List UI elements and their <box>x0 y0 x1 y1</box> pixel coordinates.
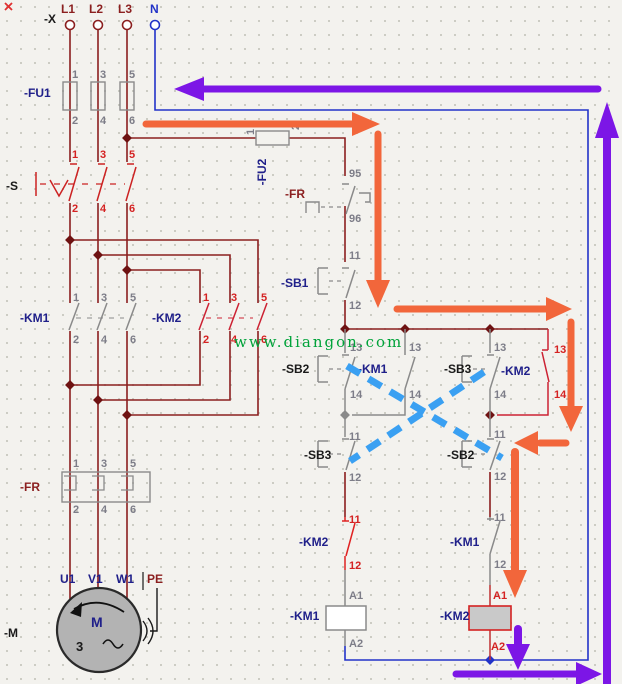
pin: 5 <box>129 69 135 81</box>
junction <box>65 380 75 390</box>
pin: 3 <box>100 149 106 161</box>
sb3-nc-symbol <box>342 439 355 470</box>
fu2-body <box>256 131 289 145</box>
km1-coil-body <box>326 606 366 630</box>
terminal-l2 <box>94 21 103 30</box>
terminal-l1 <box>66 21 75 30</box>
sb2-plunger-icon <box>318 356 328 382</box>
schematic-canvas: -X L1 L2 L3 N -FU1 1 3 5 2 4 6 -S 1 3 5 … <box>0 0 622 684</box>
motor-reversing-circuit-diagram: -X L1 L2 L3 N -FU1 1 3 5 2 4 6 -S 1 3 5 … <box>0 0 622 684</box>
pin: A2 <box>349 638 363 650</box>
pin: 2 <box>72 203 78 215</box>
corner-x-mark-icon <box>5 3 12 10</box>
phase-l2-label: L2 <box>89 2 103 16</box>
arrowhead-down <box>366 280 390 308</box>
pin: 2 <box>73 334 79 346</box>
phase-l3-label: L3 <box>118 2 132 16</box>
km2-aux-label: -KM2 <box>501 364 531 378</box>
power-wires <box>70 30 548 600</box>
junction <box>122 265 132 275</box>
fu1-label: -FU1 <box>24 86 51 100</box>
pin: 3 <box>100 69 106 81</box>
pin: 1 <box>73 458 79 470</box>
pin: 1 <box>73 292 79 304</box>
motor-phase-count: 3 <box>76 639 83 654</box>
motor-pe-label: PE <box>147 572 163 586</box>
pin: 12 <box>349 472 361 484</box>
pin: A2 <box>491 641 505 653</box>
fr-nc-contact: -FR 95 96 <box>285 168 370 225</box>
sb2-nc-contact: -SB2 11 12 <box>447 415 506 483</box>
pin: 12 <box>349 560 361 572</box>
flow-arrows-purple <box>174 77 619 684</box>
pin: 11 <box>349 250 361 262</box>
pin: 2 <box>73 504 79 516</box>
supply-terminals: -X L1 L2 L3 N <box>5 2 160 30</box>
sb2-nc-label: -SB2 <box>447 448 475 462</box>
km2-main-label: -KM2 <box>152 311 182 325</box>
pin: 3 <box>101 292 107 304</box>
contactor-km1-main: -KM1 1 3 5 2 4 6 <box>20 292 136 346</box>
pin: 1 <box>72 69 78 81</box>
km1-nc-symbol <box>487 517 500 585</box>
pin: 14 <box>409 389 422 401</box>
pin: 2 <box>72 115 78 127</box>
pin: 14 <box>554 389 567 401</box>
switch-contacts <box>69 164 136 201</box>
pin: 4 <box>100 115 107 127</box>
pin: 14 <box>350 389 363 401</box>
power-wire-path <box>70 30 548 600</box>
neutral-label: N <box>150 2 159 16</box>
motor-w1-label: W1 <box>116 572 134 586</box>
sb2-no-label: -SB2 <box>282 362 310 376</box>
km1-aux-label: -KM1 <box>358 362 388 376</box>
pin: 1 <box>72 149 78 161</box>
pin: 1 <box>203 292 209 304</box>
s-label: -S <box>6 179 18 193</box>
arrowhead-up <box>595 102 619 138</box>
arrowhead-left <box>174 77 204 101</box>
pin: 6 <box>129 115 135 127</box>
pin: 4 <box>101 504 108 516</box>
motor-u1-label: U1 <box>60 572 76 586</box>
fu2-label: -FU2 <box>255 158 269 185</box>
pin: 11 <box>349 431 361 443</box>
km1-coil-label: -KM1 <box>290 609 320 623</box>
km2-coil: -KM2 A1 A2 <box>440 590 511 653</box>
pin: 3 <box>101 458 107 470</box>
fuse-fu1: -FU1 1 3 5 2 4 6 <box>24 69 135 127</box>
pin: 5 <box>130 292 136 304</box>
junction <box>93 250 103 260</box>
km2-nc-label: -KM2 <box>299 535 329 549</box>
pin: 4 <box>101 334 108 346</box>
terminal-l3 <box>123 21 132 30</box>
pin: 1 <box>245 129 257 135</box>
phase-l1-label: L1 <box>61 2 75 16</box>
fr-nc-label: -FR <box>285 187 305 201</box>
junction <box>122 133 132 143</box>
pin: 5 <box>129 149 135 161</box>
pin: 13 <box>494 342 506 354</box>
interlock-dashed-lines <box>347 366 502 461</box>
km2-aux-contact: -KM2 13 14 <box>497 329 567 415</box>
pin: 12 <box>494 559 506 571</box>
pin: 6 <box>130 504 136 516</box>
motor-m: U1 V1 W1 PE M 3 -M <box>4 572 163 672</box>
sb1-nc-symbol <box>342 268 355 298</box>
pin: 95 <box>349 168 361 180</box>
fuse-fu2: 1 2 -FU2 <box>245 124 302 185</box>
pin: A1 <box>349 590 363 602</box>
km2-coil-label: -KM2 <box>440 609 470 623</box>
pin: 12 <box>494 471 506 483</box>
terminal-block-label: -X <box>44 12 56 26</box>
pin: 5 <box>130 458 136 470</box>
sb3-nc-label: -SB3 <box>304 448 332 462</box>
km1-main-label: -KM1 <box>20 311 50 325</box>
sb1-label: -SB1 <box>281 276 309 290</box>
junction <box>65 235 75 245</box>
pin: 6 <box>129 203 135 215</box>
pin: 6 <box>130 334 136 346</box>
km2-contacts <box>199 303 267 330</box>
motor-letter: M <box>91 614 103 630</box>
motor-v1-label: V1 <box>88 572 103 586</box>
arrowhead-right <box>546 297 572 321</box>
junction <box>93 395 103 405</box>
pin: 13 <box>554 344 566 356</box>
sb3-nc-contact: -SB3 11 12 <box>304 415 361 484</box>
terminal-n <box>151 21 160 30</box>
fr-trip-icon <box>306 202 319 213</box>
sb3-no-symbol <box>487 355 500 389</box>
km1-contacts <box>69 303 136 330</box>
pin: A1 <box>493 590 507 602</box>
pin: 13 <box>409 342 421 354</box>
km1-nc-label: -KM1 <box>450 535 480 549</box>
sb1-plunger-icon <box>318 268 328 294</box>
km1-aux-symbol <box>405 357 415 389</box>
sb1-stop-button: -SB1 11 12 <box>281 250 361 312</box>
km2-coil-body <box>469 606 511 630</box>
sb3-start-contact: -SB3 13 14 <box>444 329 507 415</box>
disconnect-switch-s: -S 1 3 5 2 4 6 <box>6 149 136 215</box>
pin: 14 <box>494 389 507 401</box>
pin: 11 <box>494 512 506 524</box>
pin: 5 <box>261 292 267 304</box>
pin: 12 <box>349 300 361 312</box>
junction <box>122 410 132 420</box>
pin: 2 <box>203 334 209 346</box>
pin: 11 <box>494 429 506 441</box>
pin: 4 <box>100 203 107 215</box>
km1-coil: -KM1 A1 A2 <box>290 590 366 650</box>
arrowhead-down <box>559 406 583 432</box>
fr-nc-symbol <box>342 184 370 214</box>
fr-power-label: -FR <box>20 480 40 494</box>
pin: 3 <box>231 292 237 304</box>
thermal-relay-fr-power: -FR 1 3 5 2 4 6 <box>20 458 150 516</box>
km1-nc-interlock: -KM1 11 12 <box>450 512 506 660</box>
watermark: www.diangon.com <box>234 333 403 351</box>
flow-arrows-orange <box>146 112 583 598</box>
motor-body <box>57 588 141 672</box>
arrowhead-down <box>506 644 530 670</box>
arrowhead-right <box>576 662 602 684</box>
motor-label: -M <box>4 626 18 640</box>
pin: 96 <box>349 213 361 225</box>
pin: 11 <box>349 514 361 526</box>
sb3-no-label: -SB3 <box>444 362 472 376</box>
